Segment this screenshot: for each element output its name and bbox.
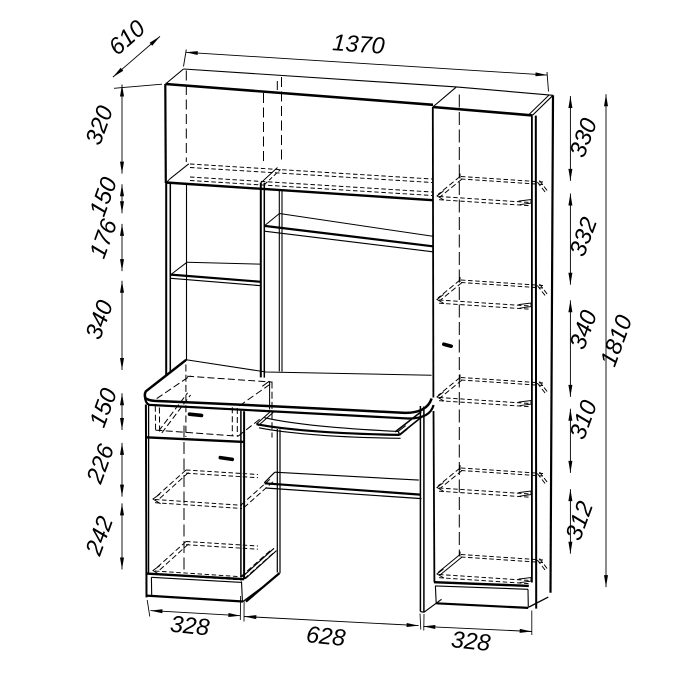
svg-text:328: 328 — [450, 626, 492, 656]
svg-text:628: 628 — [305, 621, 347, 651]
svg-text:1370: 1370 — [332, 29, 386, 59]
svg-text:328: 328 — [169, 611, 211, 641]
